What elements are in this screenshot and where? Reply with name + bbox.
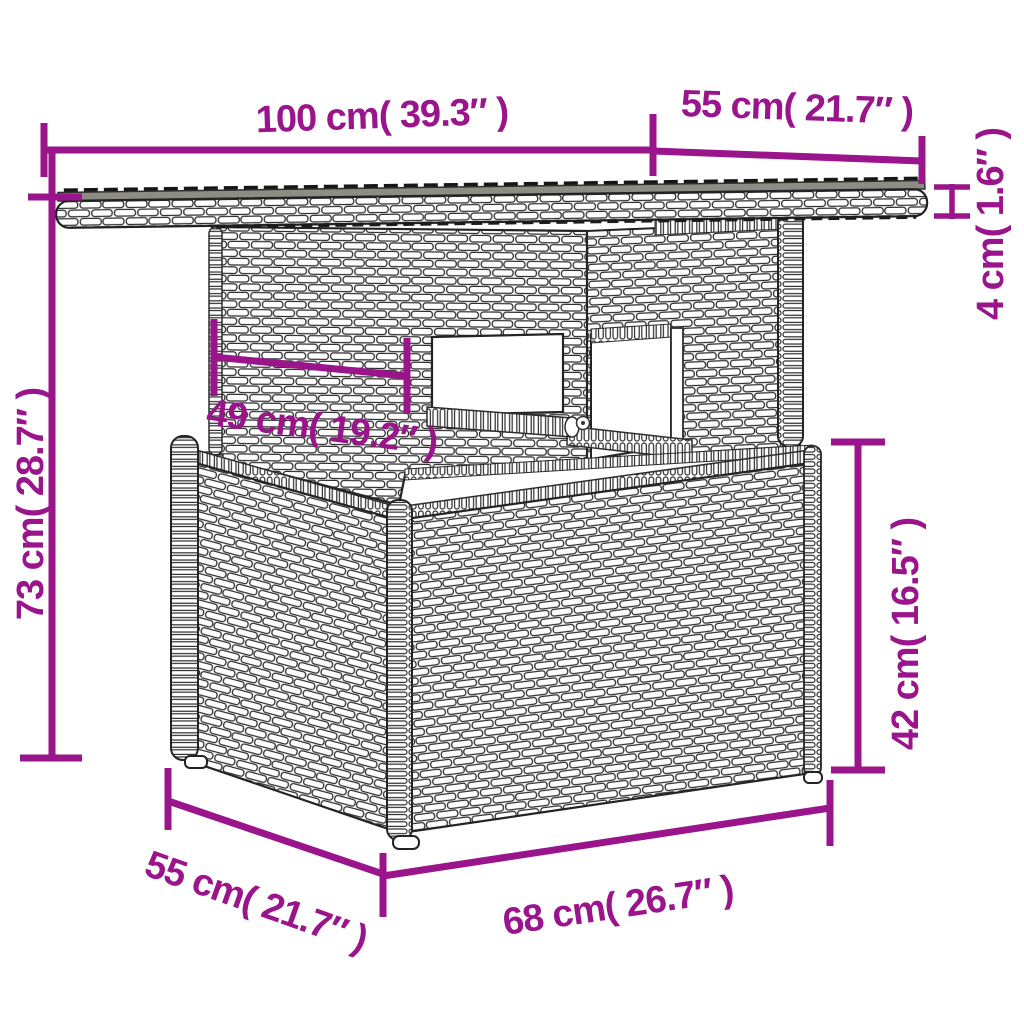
base-right-corner <box>804 446 821 776</box>
dim-label-top-thickness: 4 cm( 1.6″ ) <box>972 128 1010 320</box>
dim-label-top-width: 100 cm( 39.3″ ) <box>255 93 509 140</box>
base-rear-left-corner <box>171 436 198 760</box>
pedestal-rear-corner <box>778 211 803 447</box>
foot <box>393 836 419 849</box>
dim-label-total-height: 73 cm( 28.7″ ) <box>12 388 50 620</box>
dim-label-top-depth: 55 cm( 21.7″ ) <box>680 85 914 131</box>
base-front-face <box>398 462 818 833</box>
dim-top-thickness-line <box>934 184 970 219</box>
dim-label-base-height: 42 cm( 16.5″ ) <box>887 518 925 750</box>
rail-knob-dot <box>581 421 585 425</box>
base-near-corner <box>387 500 412 840</box>
dim-base-height-line <box>831 442 885 770</box>
base-left-face <box>178 463 400 833</box>
foot <box>185 756 207 768</box>
pedestal-corner-post <box>671 328 683 446</box>
dim-top-depth-line <box>653 136 922 184</box>
dimension-diagram: 100 cm( 39.3″ ) 55 cm( 21.7″ ) 4 cm( 1.6… <box>0 0 1024 1024</box>
foot <box>804 772 822 783</box>
base-box <box>171 436 822 849</box>
